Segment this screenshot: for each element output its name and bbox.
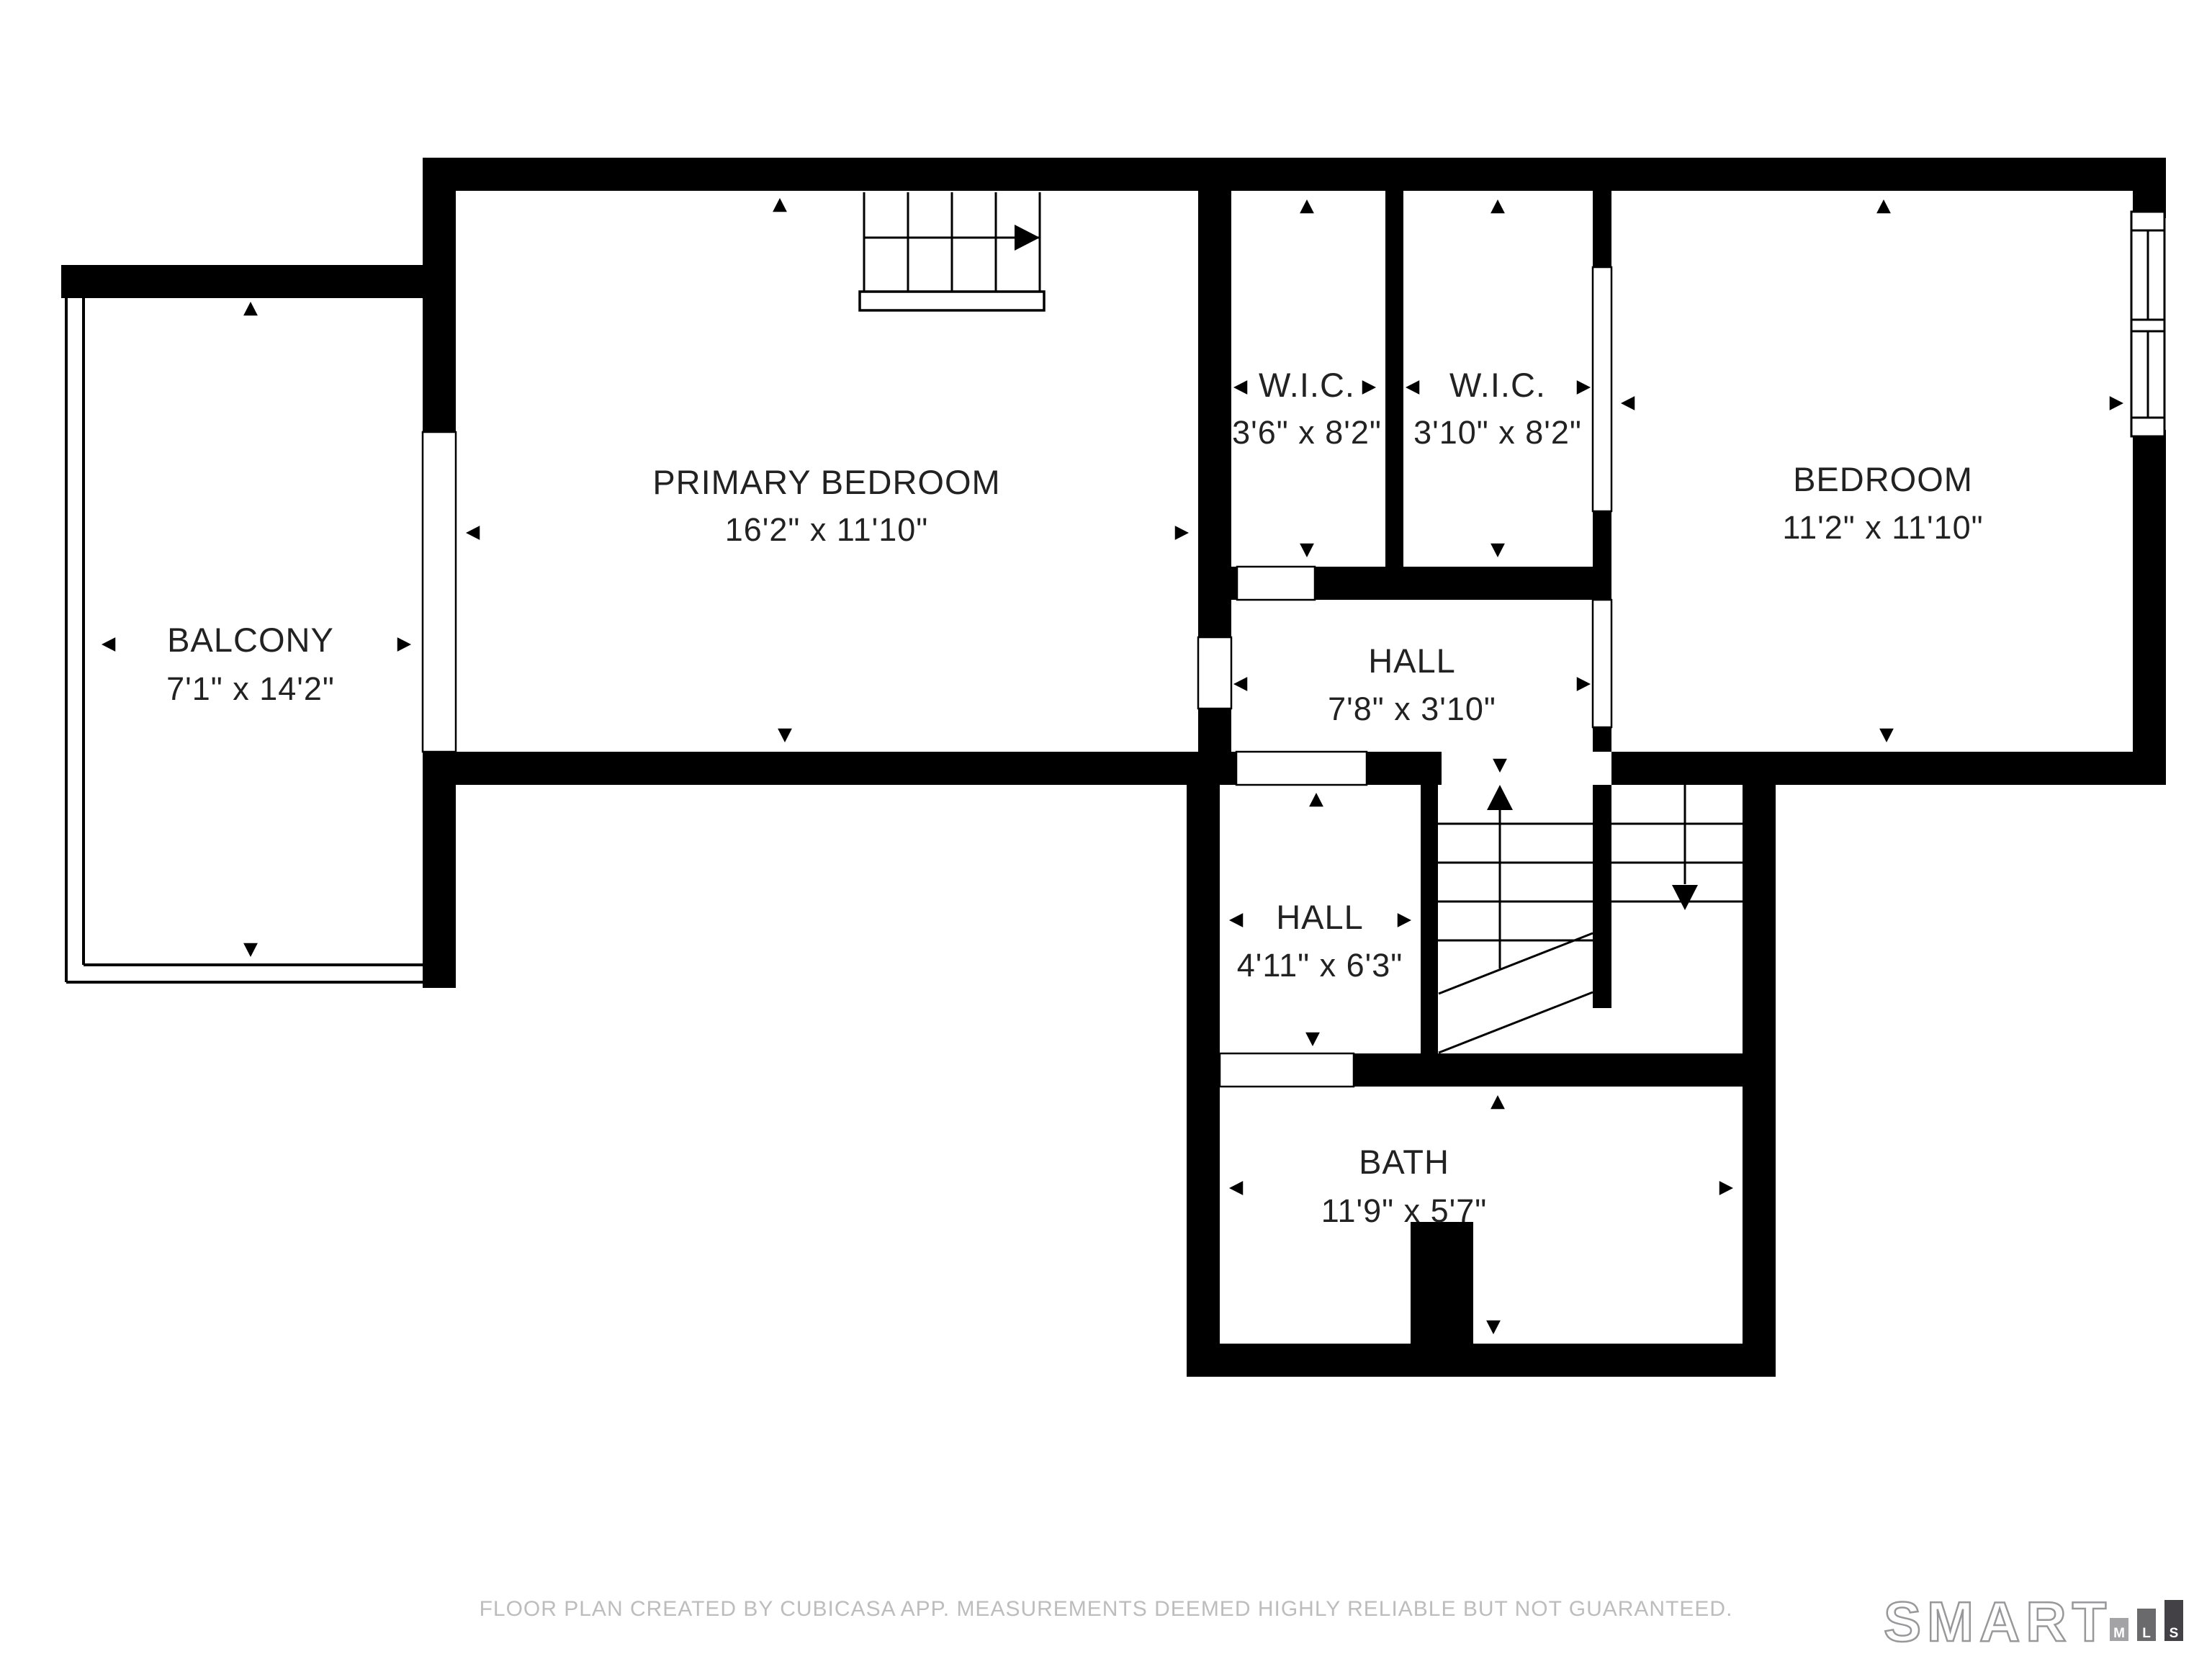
room-dims-primary-bedroom: 16'2" x 11'10" xyxy=(725,511,928,548)
room-label-wic-left: W.I.C.3'6" x 8'2" xyxy=(1232,366,1382,451)
walls-layer xyxy=(61,158,2166,1377)
room-label-hall-lower: HALL4'11" x 6'3" xyxy=(1237,898,1403,984)
room-name-hall-lower: HALL xyxy=(1276,898,1364,936)
room-name-balcony: BALCONY xyxy=(167,621,334,659)
room-dims-balcony: 7'1" x 14'2" xyxy=(166,670,335,707)
room-name-hall-upper: HALL xyxy=(1368,642,1456,680)
room-name-wic-right: W.I.C. xyxy=(1449,366,1546,404)
room-dims-hall-upper: 7'8" x 3'10" xyxy=(1328,691,1496,727)
logo-bar-m-label: M xyxy=(2113,1626,2125,1641)
room-name-primary-bedroom: PRIMARY BEDROOM xyxy=(652,463,1000,501)
room-label-wic-right: W.I.C.3'10" x 8'2" xyxy=(1413,366,1582,451)
room-dims-bath: 11'9" x 5'7" xyxy=(1321,1192,1487,1229)
floorplan-page: BALCONY7'1" x 14'2"PRIMARY BEDROOM16'2" … xyxy=(0,0,2212,1659)
room-dims-hall-lower: 4'11" x 6'3" xyxy=(1237,947,1403,984)
room-dims-wic-left: 3'6" x 8'2" xyxy=(1232,414,1382,451)
windows-layer xyxy=(2131,212,2164,436)
room-label-hall-upper: HALL7'8" x 3'10" xyxy=(1328,642,1496,727)
room-name-bedroom: BEDROOM xyxy=(1793,460,1973,498)
room-label-balcony: BALCONY7'1" x 14'2" xyxy=(166,621,335,707)
room-dims-wic-right: 3'10" x 8'2" xyxy=(1413,414,1582,451)
logo-wordmark: SMART xyxy=(1884,1590,2112,1652)
logo-bar-s-label: S xyxy=(2170,1626,2179,1641)
room-label-bedroom: BEDROOM11'2" x 11'10" xyxy=(1782,460,1983,546)
room-label-primary-bedroom: PRIMARY BEDROOM16'2" x 11'10" xyxy=(652,463,1000,548)
room-label-bath: BATH11'9" x 5'7" xyxy=(1321,1143,1487,1229)
room-name-wic-left: W.I.C. xyxy=(1259,366,1355,404)
room-dims-bedroom: 11'2" x 11'10" xyxy=(1782,509,1983,546)
floorplan-drawing: BALCONY7'1" x 14'2"PRIMARY BEDROOM16'2" … xyxy=(0,0,2212,1659)
smartmls-logo: SMART M L S xyxy=(1881,1580,2212,1652)
logo-bar-l-label: L xyxy=(2142,1626,2151,1641)
room-name-bath: BATH xyxy=(1359,1143,1449,1181)
